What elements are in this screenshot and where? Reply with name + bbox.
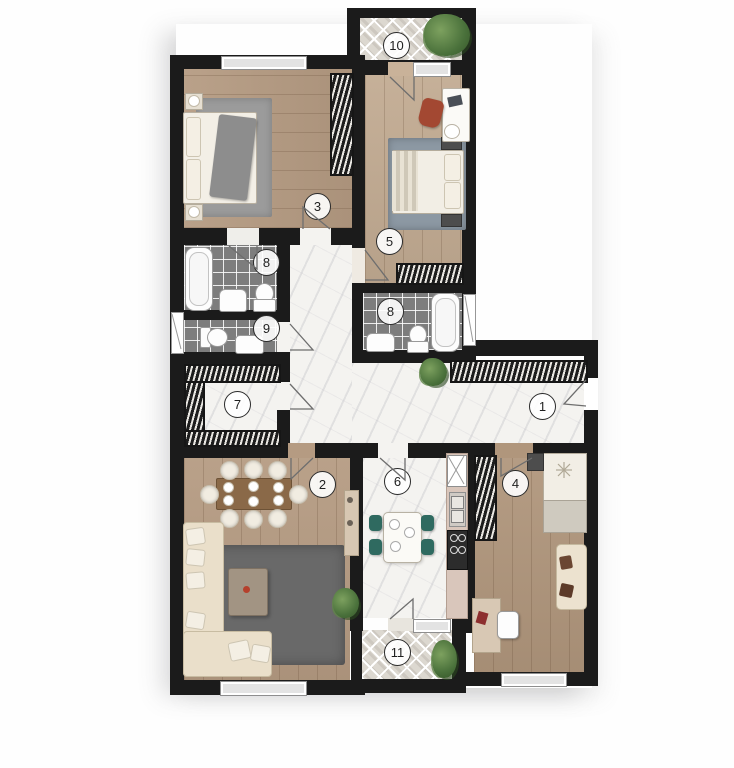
wardrobe-closet7-bottom (184, 430, 281, 447)
sofa-pillow-1 (185, 527, 206, 546)
dining-chair-2 (244, 460, 263, 479)
bath8b-sink (366, 333, 395, 352)
bedroom5-blanket (392, 151, 418, 211)
sofa-pillow-6 (250, 643, 272, 663)
kitchen-plate-2 (404, 527, 415, 538)
room-label-balcony-10: 10 (383, 32, 410, 59)
bedroom4-bed-blanket (543, 500, 587, 533)
window-bedroom5-balcony (413, 62, 451, 77)
wall-hall-top (470, 340, 597, 356)
bedroom5-stool (444, 124, 460, 139)
wardrobe-hall1 (450, 360, 588, 383)
bedroom3-lamp-1 (188, 95, 200, 107)
door-gap-closet7-corridor (277, 382, 290, 410)
bedroom4-sofa-pillow-1 (559, 555, 573, 570)
wall-bedroom3-bottom (170, 228, 365, 245)
window-bedroom4 (501, 673, 567, 687)
door-gap-kitchen-balcony11 (388, 618, 415, 631)
kitchen-burner-2 (458, 534, 466, 542)
kitchen-chair-4 (421, 539, 434, 555)
room-label-balcony-11: 11 (384, 639, 411, 666)
kitchen-chair-3 (421, 515, 434, 531)
wall-balcony11-bottom (351, 679, 462, 693)
room-label-closet-7: 7 (224, 391, 251, 418)
bedroom4-sofa-pillow-2 (559, 583, 574, 598)
window-bedroom3 (221, 56, 307, 70)
room-label-hall-1: 1 (529, 393, 556, 420)
bedroom5-pillow-1 (444, 154, 461, 181)
door-gap-balcony10-bedroom5 (388, 62, 415, 76)
kitchen-burner-4 (458, 546, 466, 554)
window-wc9 (171, 312, 184, 354)
kitchen-sink-basin-1 (451, 496, 464, 509)
bath8b-bathtub-inner (435, 298, 456, 347)
room-label-wc-9: 9 (253, 315, 280, 342)
bedroom3-pillow-1 (186, 117, 201, 157)
bedroom5-nightstand-2 (441, 214, 462, 227)
sofa-pillow-2 (185, 548, 206, 567)
console-decor-2 (347, 520, 353, 526)
window-living (220, 681, 307, 696)
room-label-bedroom-5: 5 (376, 228, 403, 255)
kitchen-burner-1 (450, 534, 458, 542)
wardrobe-bedroom4 (474, 455, 497, 541)
bath8a-bathtub-inner (189, 252, 209, 306)
door-gap-corridor-bedroom5 (352, 248, 365, 283)
dining-plate-2 (248, 481, 259, 492)
console-decor-1 (347, 497, 353, 503)
wardrobe-bedroom5 (396, 263, 464, 285)
door-gap-corridor-living (288, 443, 315, 458)
kitchen-table (383, 512, 422, 563)
room-label-living-2: 2 (309, 471, 336, 498)
sofa-pillow-3 (185, 571, 205, 590)
kitchen-sink-basin-2 (451, 510, 464, 523)
kitchen-burner-3 (450, 546, 458, 554)
kitchen-plate-1 (389, 519, 400, 530)
plant-balcony10 (424, 14, 470, 56)
bath8b-toilet-tank (407, 341, 429, 353)
dining-plate-3 (273, 482, 284, 493)
door-gap-bedroom3-bath8a (227, 228, 259, 245)
plant-living (333, 588, 359, 618)
bedroom3-pillow-2 (186, 159, 201, 200)
bedroom4-chair (497, 611, 519, 639)
door-gap-bedroom3-corridor (300, 228, 331, 245)
coffee-table-candle (243, 586, 250, 593)
wall-left-exterior (170, 55, 184, 695)
bedroom4-bed-mattress (543, 453, 587, 505)
room-label-bathroom-8b: 8 (377, 298, 404, 325)
sofa-pillow-4 (185, 611, 206, 631)
dining-chair-5 (244, 510, 263, 529)
dining-plate-1 (223, 482, 234, 493)
bath8a-sink (219, 289, 247, 312)
plant-corridor (420, 358, 447, 386)
wardrobe-bedroom3 (330, 73, 354, 176)
room-label-bedroom-3: 3 (304, 193, 331, 220)
dining-plate-5 (248, 496, 259, 507)
corridor-floor (290, 241, 352, 443)
kitchen-chair-2 (369, 539, 382, 555)
room-label-bedroom-4: 4 (502, 470, 529, 497)
room-label-kitchen-6: 6 (384, 468, 411, 495)
bedroom5-pillow-2 (444, 182, 461, 209)
dining-chair-8 (289, 485, 308, 504)
kitchen-chair-1 (369, 515, 382, 531)
plant-balcony11 (432, 640, 457, 678)
bath8a-toilet-tank (253, 299, 276, 312)
wc9-toilet-bowl (207, 328, 228, 347)
window-kitchen-balcony (413, 619, 451, 633)
door-gap-corridor-kitchen (378, 443, 408, 458)
bedroom4-nightstand (527, 453, 544, 471)
window-bathroom8b (463, 294, 476, 346)
wall-wc9-closet7 (170, 352, 290, 364)
dining-chair-7 (200, 485, 219, 504)
room-label-bathroom-8a: 8 (253, 249, 280, 276)
bedroom4-sofa (556, 544, 587, 610)
dining-chair-6 (268, 509, 287, 528)
kitchen-plate-3 (390, 541, 401, 552)
dining-plate-4 (223, 495, 234, 506)
dining-chair-3 (268, 461, 287, 480)
dining-plate-6 (273, 495, 284, 506)
wardrobe-closet7-left (184, 381, 205, 435)
bedroom3-lamp-2 (188, 206, 200, 218)
dining-chair-1 (220, 461, 239, 480)
floor-plan-canvas: 1 2 3 4 5 6 7 8 8 9 10 11 (0, 0, 734, 768)
kitchen-fridge (447, 455, 467, 487)
